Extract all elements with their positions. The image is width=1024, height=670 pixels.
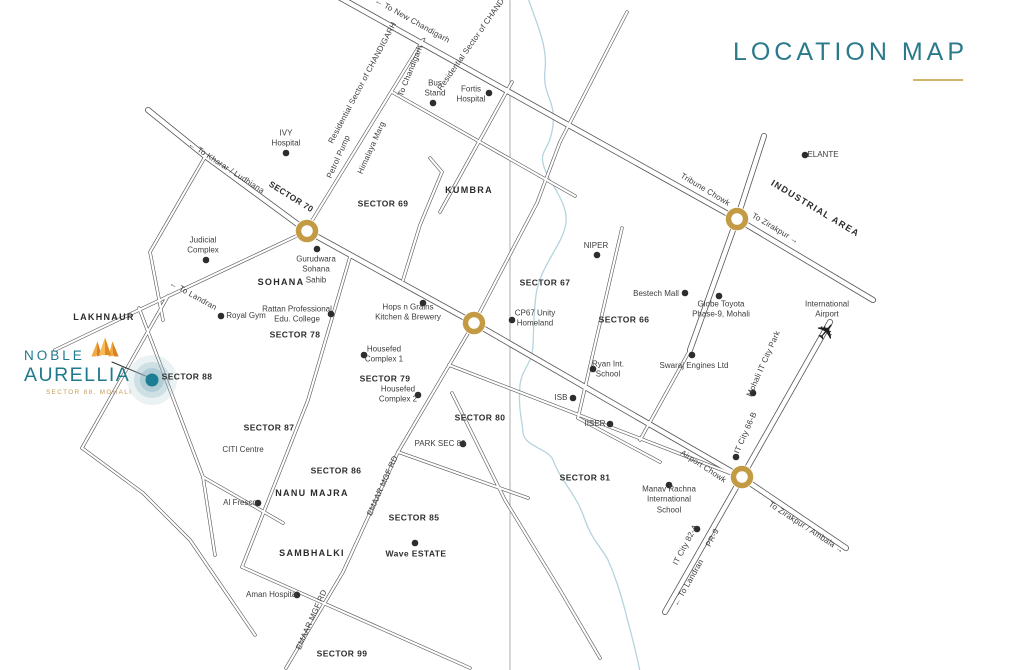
area-label-nanu-majra: NANU MAJRA [275,488,349,500]
page-title: LOCATION MAP [733,38,968,67]
poi-label-rattan-professional-edu-college: Rattan Professional Edu. College [262,305,332,326]
sector-label-sector-78: SECTOR 78 [270,329,321,340]
road-label-airport-chowk: Airport Chowk [678,448,728,485]
noble-aurellia-logo: NOBLE AURELLIA SECTOR 88, MOHALI [24,336,124,396]
poi-label-cp67-unity-homeland: CP67 Unity Homeland [515,309,555,330]
poi-label-fortis-hospital: Fortis Hospital [457,85,486,106]
road-label-residential-sector-of-chandigarh: Residential Sector of CHANDIGARH [326,20,399,145]
sector-label-sector-85: SECTOR 85 [389,512,440,523]
sector-label-sector-80: SECTOR 80 [455,412,506,423]
poi-label-bestech-mall: Bestech Mall [633,289,679,299]
sector-label-sector-99: SECTOR 99 [317,648,368,659]
road-label-emaar-mgf-rd: EMAAR MGF RD [294,588,330,651]
sector-label-wave-estate: Wave ESTATE [386,548,447,559]
road-label-it-city-66-b: IT City 66-B [732,411,760,456]
location-map-page: ✈ ← To New ChandigarhResidential Sector … [0,0,1024,670]
poi-label-international-airport: International Airport [805,300,849,321]
sector-label-sector-81: SECTOR 81 [560,472,611,483]
poi-label-park-sec-80: PARK SEC 80 [415,439,466,449]
logo-noble-text: NOBLE [24,348,85,363]
poi-label-isb: ISB [555,393,568,403]
road-label-to-zirakpur-ambala: To Zirakpur / Ambala → [766,500,845,557]
road-label-mohali-it-city-park: Mohali IT City Park [745,329,783,398]
poi-label-royal-gym: Royal Gym [226,311,266,321]
poi-label-al-fresco: Al Fresco [223,498,257,508]
poi-label-swaraj-engines-ltd: Swaraj Engines Ltd [660,361,729,371]
sector-label-sector-86: SECTOR 86 [311,465,362,476]
sector-label-sector-70: SECTOR 70 [267,179,316,215]
poi-label-judicial-complex: Judicial Complex [187,236,219,257]
poi-label-aman-hospital: Aman Hospital [246,590,298,600]
sector-label-sector-67: SECTOR 67 [520,277,571,288]
poi-label-housefed-complex-2: Housefed Complex 2 [379,385,417,406]
poi-label-globe-toyota-phase-9-mohali: Globe Toyota Phase-9, Mohali [692,300,750,321]
poi-label-ivy-hospital: IVY Hospital [272,129,301,150]
poi-label-manav-rachna-international-school: Manav Rachna International School [642,484,696,515]
logo-aurellia-text: AURELLIA [24,364,124,387]
sector-label-sector-66: SECTOR 66 [599,314,650,325]
crown-icon [90,336,120,363]
road-label-to-kharar-ludhiana: ← To Kharar / Ludhiana [186,139,266,196]
road-label-emaar-mgf-rd: EMAAR MGF RD [365,454,401,517]
sector-label-sector-88: SECTOR 88 [162,371,213,382]
poi-label-ryan-int-school: Ryan Int. School [592,360,624,381]
road-label-pr-9: PR-9 [704,527,722,549]
sector-label-sector-79: SECTOR 79 [360,373,411,384]
road-label-to-landran: ← To Landran [168,279,219,314]
poi-label-bus-stand: Bus Stand [425,79,446,100]
road-label-residential-sector-of-chandigarh: Residential Sector of CHANDIGARH [436,0,523,93]
logo-subtitle: SECTOR 88, MOHALI [46,389,124,396]
poi-label-hops-n-grains-kitchen-brewery: Hops n Grains Kitchen & Brewery [375,303,441,324]
sector-label-sector-87: SECTOR 87 [244,422,295,433]
road-label-tribune-chowk: Tribune Chowk [678,171,731,209]
poi-label-housefed-complex-1: Housefed Complex 1 [365,345,403,366]
area-label-kumbra: KUMBRA [445,185,493,197]
poi-label-elante: ELANTE [807,150,838,160]
map-labels-layer: ← To New ChandigarhResidential Sector of… [0,0,1024,670]
poi-label-niper: NIPER [584,241,608,251]
area-label-lakhnaur: LAKHNAUR [73,312,134,324]
area-label-sohana: SOHANA [258,277,305,289]
poi-label-citi-centre: CITI Centre [222,445,263,455]
road-label-to-zirakpur: To Zirakpur → [750,211,801,247]
title-underline [913,79,963,81]
sector-label-sector-69: SECTOR 69 [358,198,409,209]
poi-label-iiser: IISER [585,419,606,429]
road-label-himalaya-marg: Himalaya Marg [356,120,388,176]
area-label-sambhalki: SAMBHALKI [279,548,345,560]
